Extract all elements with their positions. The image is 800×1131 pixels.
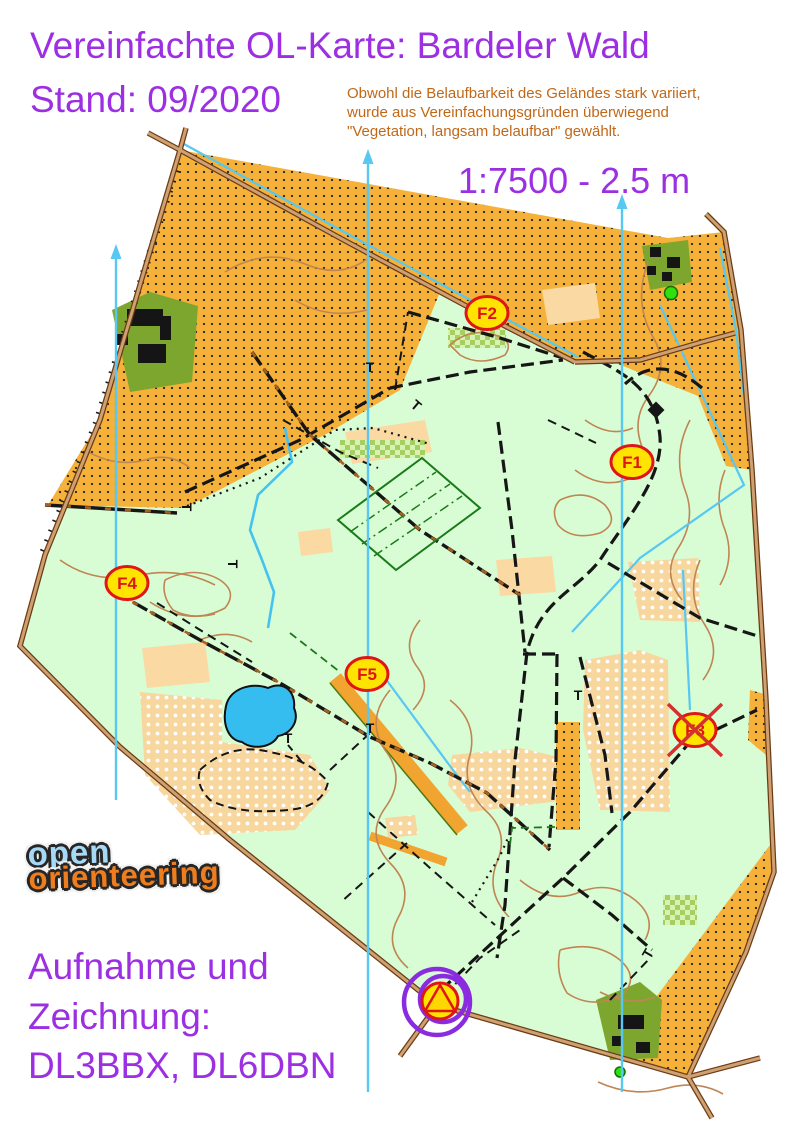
t-marker: T	[366, 720, 375, 736]
control-point-f4: F4	[106, 567, 148, 600]
control-label: F4	[117, 574, 137, 593]
note-line-2: wurde aus Vereinfachungsgründen überwieg…	[347, 103, 701, 122]
note-line-3: "Vegetation, langsam belaufbar" gewählt.	[347, 122, 701, 141]
logo-word-orienteering: orienteering	[28, 859, 220, 894]
credits-block: Aufnahme und Zeichnung: DL3BBX, DL6DBN	[28, 942, 336, 1091]
map-scale: 1:7500 - 2.5 m	[458, 162, 690, 201]
control-label: F1	[622, 453, 642, 472]
t-marker: T	[179, 503, 195, 512]
t-marker: T	[366, 359, 375, 375]
t-marker: T	[284, 730, 293, 746]
t-marker: T	[225, 560, 241, 569]
ol-map-page: TTTTTTTT F1F2F3F4F5 Vereinfachte OL-Kart…	[0, 0, 800, 1131]
control-point-f5: F5	[346, 658, 388, 691]
runnability-note: Obwohl die Belaufbarkeit des Geländes st…	[347, 84, 701, 142]
credits-line-1: Aufnahme und	[28, 942, 336, 992]
control-point-f1: F1	[611, 446, 653, 479]
north-arrow-icon	[111, 244, 122, 259]
t-marker: T	[574, 687, 583, 703]
credits-line-2: Zeichnung:	[28, 992, 336, 1042]
terrain-areas-layer	[20, 150, 774, 1077]
control-label: F2	[477, 304, 497, 323]
credits-line-3: DL3BBX, DL6DBN	[28, 1041, 336, 1091]
map-date: Stand: 09/2020	[30, 80, 281, 120]
note-line-1: Obwohl die Belaufbarkeit des Geländes st…	[347, 84, 701, 103]
map-title: Vereinfachte OL-Karte: Bardeler Wald	[30, 26, 650, 66]
openorienteering-logo: open orienteering	[27, 833, 220, 895]
control-label: F5	[357, 665, 377, 684]
control-point-f2: F2	[466, 297, 508, 330]
north-arrow-icon	[363, 149, 374, 164]
